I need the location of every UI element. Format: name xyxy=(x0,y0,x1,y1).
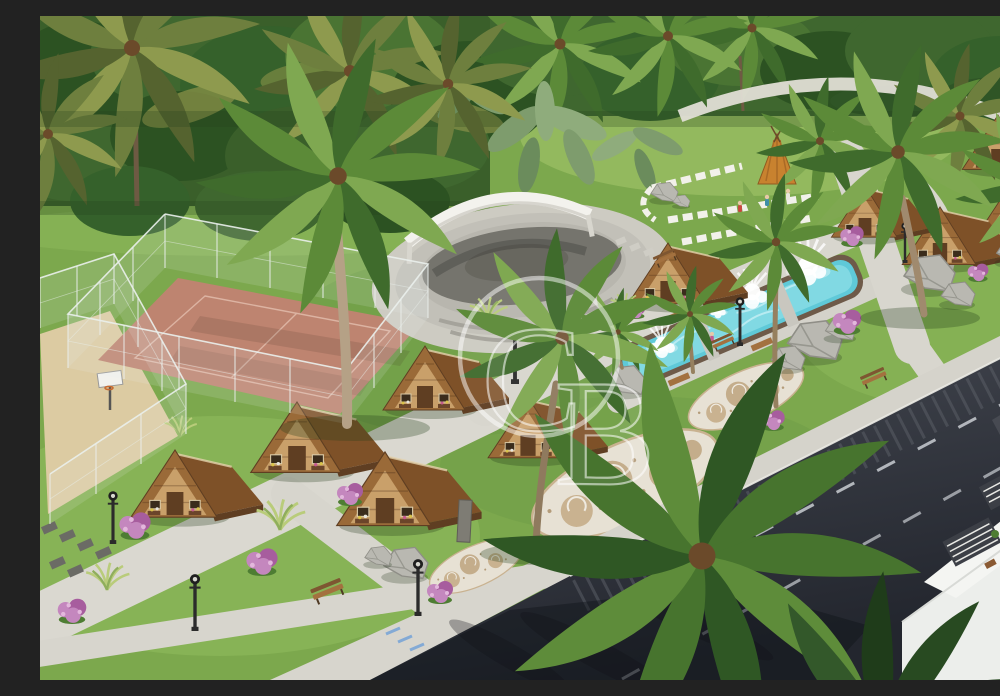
watermark-letter-b: B xyxy=(554,349,655,517)
listing-photo: C B xyxy=(40,16,1000,680)
render-scene: C B xyxy=(40,16,1000,680)
stone-monolith xyxy=(457,500,472,543)
